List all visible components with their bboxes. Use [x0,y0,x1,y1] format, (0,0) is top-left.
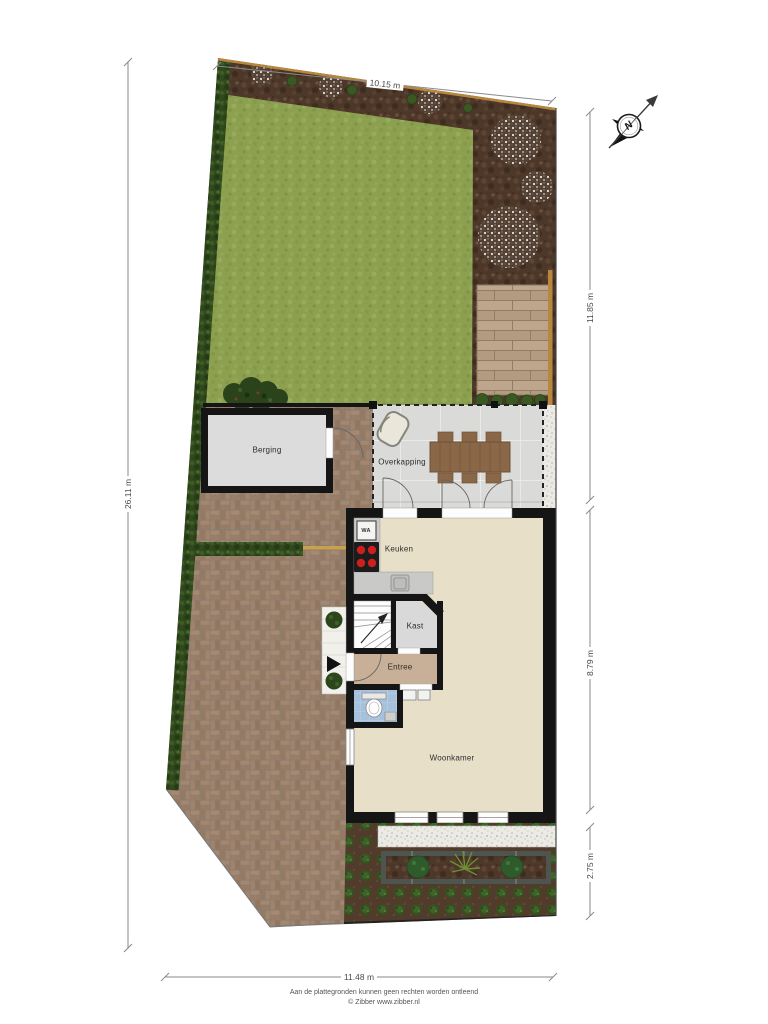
post [369,401,377,409]
sink-icon [391,575,409,591]
overkapping-label: Overkapping [378,458,426,467]
berging-label: Berging [253,446,282,455]
chair [462,432,477,442]
dining-table [430,432,510,483]
post [539,401,547,409]
post [491,401,498,408]
front-door [346,653,354,681]
bush [501,856,523,878]
floor-plan-canvas [0,0,768,1024]
overkapping-area [369,401,547,508]
deck [477,285,549,395]
cooktop-icon [354,542,379,572]
dimension-right-top: 11.85 m [585,290,595,326]
dimension-right-middle: 8.79 m [585,647,595,679]
rear-double-door [442,508,512,518]
hall-cabinet [418,690,430,700]
chair [486,432,501,442]
chair [438,432,453,442]
gravel-path [378,826,556,847]
compass-rose [609,95,658,148]
bush [407,856,429,878]
chair [462,473,477,483]
garden-edge-line [303,546,348,550]
dimension-right-bottom: 2.75 m [585,850,595,882]
kast-label: Kast [407,622,424,631]
stairs [354,601,391,650]
woonkamer-label: Woonkamer [430,754,475,763]
planter-bed [381,851,551,884]
hall-cabinet [402,690,416,700]
keuken-label: Keuken [385,545,413,554]
rear-door [383,508,417,518]
side-gravel-strip [543,405,556,508]
interior-door [398,648,420,654]
footer-copyright: © Zibber www.zibber.nl [0,999,768,1006]
garden-paving-wall [203,403,375,407]
deck-fence [548,270,553,405]
house [346,478,556,823]
potted-plant [326,673,343,690]
interior-door [400,684,432,690]
washing-machine-label: WA [361,528,370,534]
lawn [205,95,473,405]
dimension-bottom: 11.48 m [341,972,377,982]
washbasin-icon [385,712,396,721]
dimension-left: 26.11 m [123,476,133,512]
chair [486,473,501,483]
entree-label: Entree [388,663,413,672]
potted-plant [326,612,343,629]
toilet-room [354,690,397,722]
hedge-strip [188,542,303,556]
entrance-path [322,607,346,694]
footer-disclaimer: Aan de plattegronden kunnen geen rechten… [0,989,768,996]
berging-door [326,428,333,458]
